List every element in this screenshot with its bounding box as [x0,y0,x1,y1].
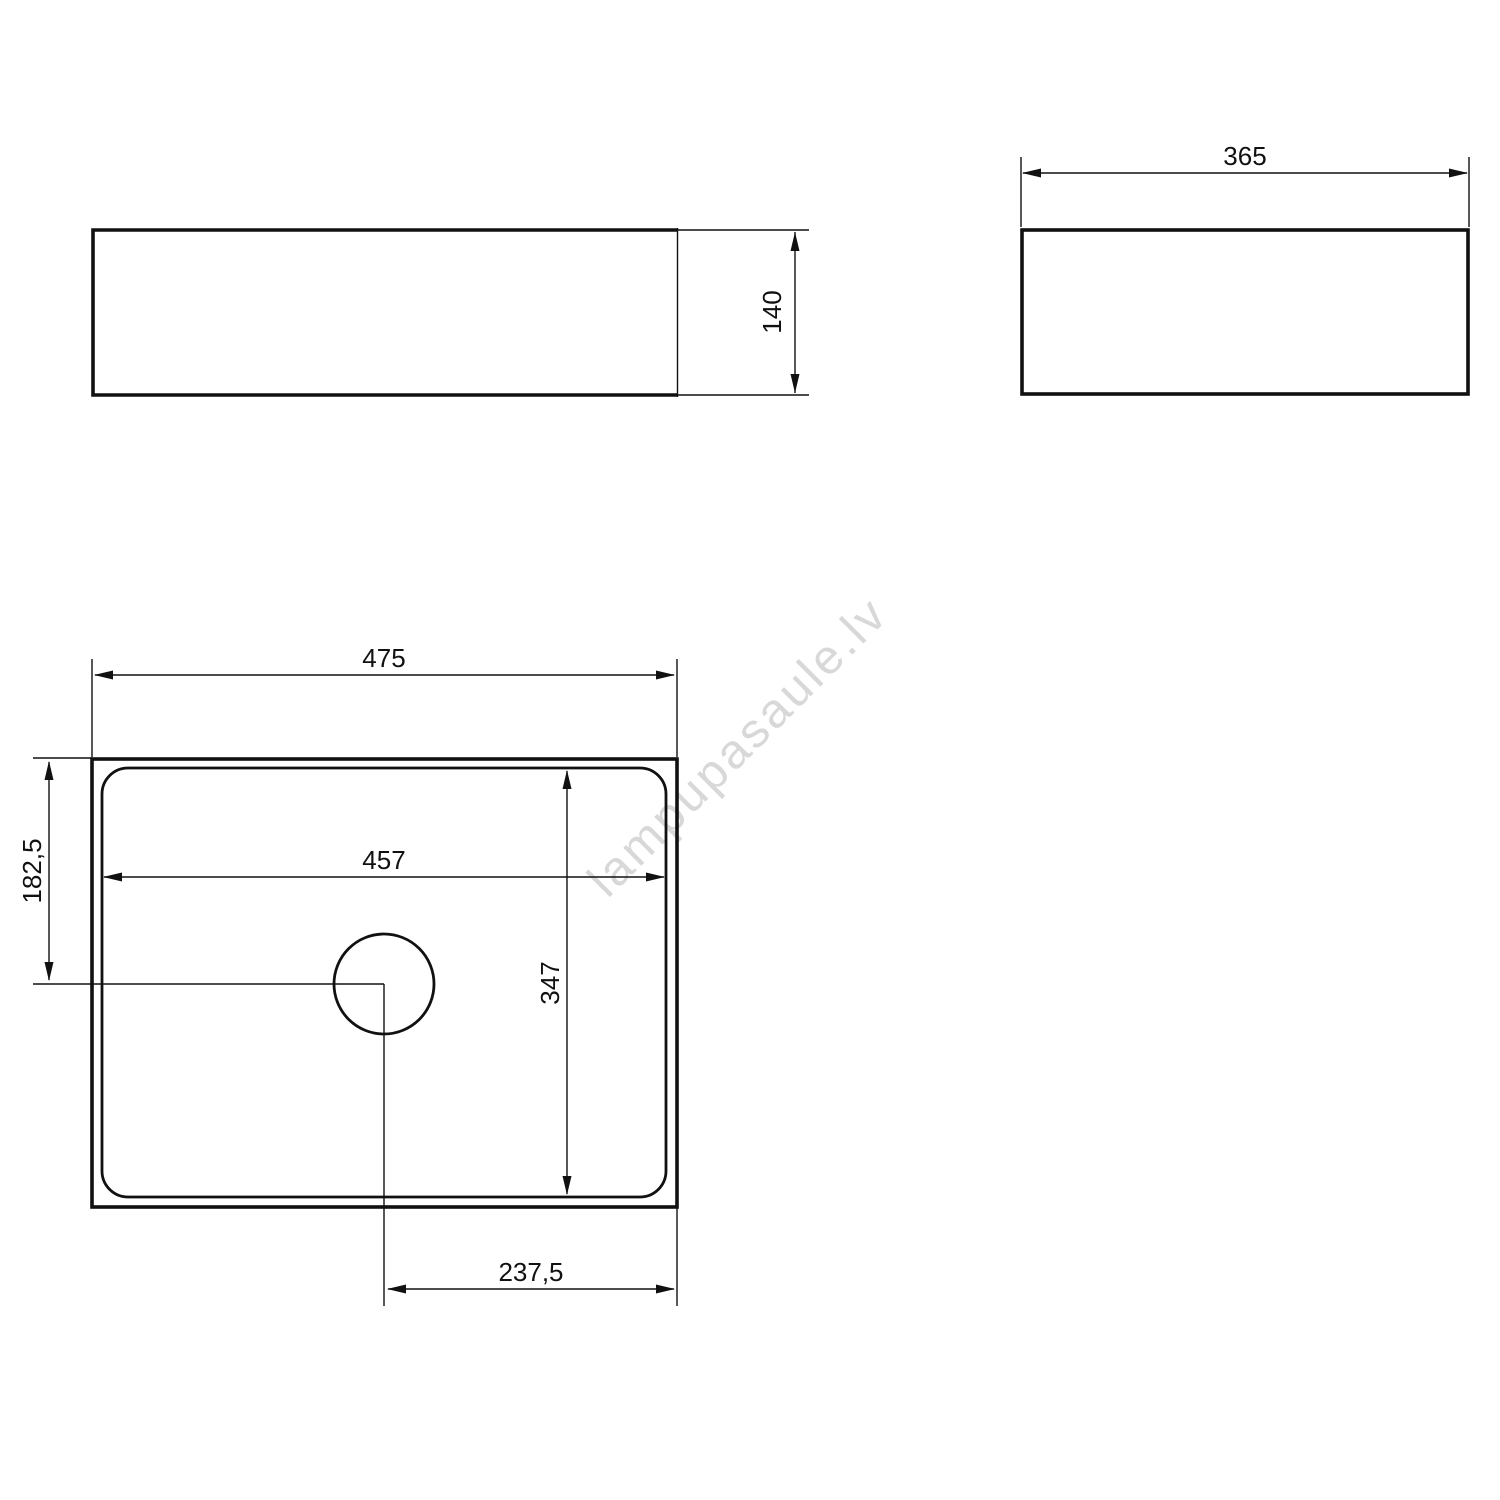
arrowhead-up [563,770,572,789]
technical-drawing: lampupasaule.lv 140 365 [0,0,1500,1500]
arrowhead-left [387,1285,406,1294]
watermark-text: lampupasaule.lv [578,587,898,907]
arrowhead-right [646,873,665,882]
arrowhead-right [656,1285,675,1294]
arrowhead-left [94,671,113,680]
arrowhead-down [45,962,54,981]
dim-label-drain-from-top: 182,5 [17,838,47,903]
plan-view: 475 457 347 182,5 [17,643,677,1306]
dim-overall-width: 475 [92,643,677,757]
dim-basin-width: 457 [103,845,665,882]
front-view-outline [93,230,678,395]
arrowhead-left [1022,169,1041,178]
arrowhead-down [791,374,800,393]
dim-drain-from-right: 237,5 [387,1208,677,1306]
dim-label-basin-depth: 347 [535,961,565,1004]
arrowhead-down [563,1176,572,1195]
arrowhead-left [103,873,122,882]
arrowhead-right [1449,169,1468,178]
arrowhead-right [656,671,675,680]
side-view-outline [1022,230,1468,394]
dim-label-basin-width: 457 [362,845,405,875]
dim-label-front-height: 140 [757,290,787,333]
front-view: 140 [93,228,809,397]
watermark: lampupasaule.lv [578,587,898,907]
arrowhead-up [791,232,800,251]
dim-drain-from-top: 182,5 [17,758,92,981]
dim-label-side-width: 365 [1223,141,1266,171]
dim-label-overall-width: 475 [362,643,405,673]
dim-front-height: 140 [677,230,809,395]
dim-label-drain-from-right: 237,5 [498,1257,563,1287]
arrowhead-up [45,761,54,780]
dim-side-width: 365 [1021,141,1469,227]
drawing-canvas: lampupasaule.lv 140 365 [0,0,1500,1500]
dim-basin-depth: 347 [535,770,572,1195]
side-view: 365 [1021,141,1469,394]
